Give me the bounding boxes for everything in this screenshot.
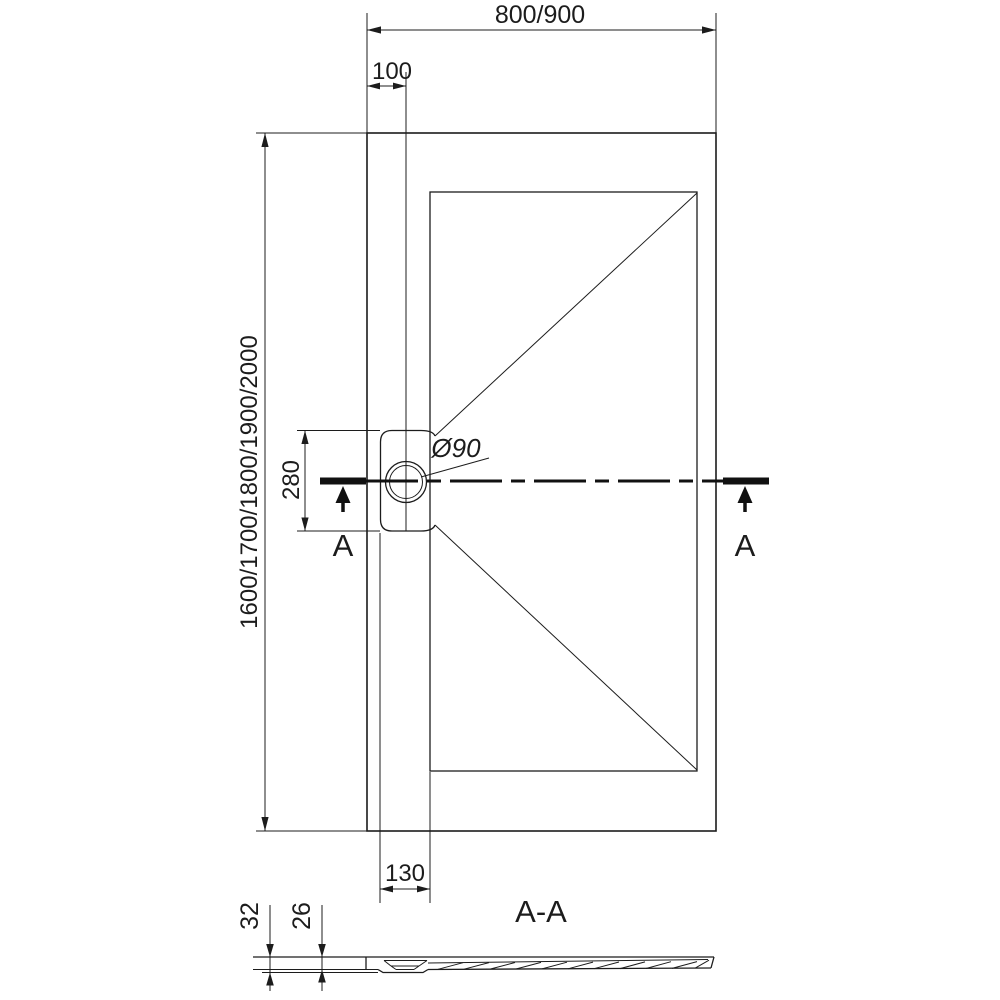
dimension-width: 800/900 (367, 1, 716, 133)
slope-diagonal-bottom (435, 525, 697, 770)
dimension-drain-diameter: Ø90 (421, 433, 489, 477)
technical-drawing-page: 800/900 100 1600/1700/1800/1900/2000 280… (0, 0, 1000, 1000)
section-slope-line (428, 960, 708, 964)
shower-tray-technical-drawing: 800/900 100 1600/1700/1800/1900/2000 280… (0, 0, 1000, 1000)
dim-offset-label: 100 (372, 58, 412, 85)
arrowhead-top (261, 133, 268, 147)
cut-marker-left-label: A (333, 528, 354, 563)
arrowhead-left (367, 26, 381, 33)
dim-total-height-label: 32 (236, 902, 264, 930)
slope-diagonal-top (435, 193, 697, 436)
arrowhead-bottom (301, 518, 308, 532)
drain-cover-slant-right (419, 961, 427, 967)
dim-length-label: 1600/1700/1800/1900/2000 (236, 335, 263, 629)
view-arrow-left-head (336, 486, 351, 503)
arrowhead-top (266, 944, 274, 957)
drain-flange-slant-left (391, 966, 396, 970)
arrowhead-bottom (261, 817, 268, 831)
dimension-drain-offset: 100 (367, 58, 412, 531)
drain-flange-slant-right (414, 966, 419, 970)
arrowhead-bottom (266, 973, 274, 986)
section-cut-line: A A (320, 481, 769, 563)
dimension-base-height: 26 (288, 902, 326, 991)
drain-cover-slant-left (384, 961, 391, 967)
arrowhead-right (702, 26, 716, 33)
dim-diameter-label: Ø90 (430, 433, 481, 463)
dim-width-label: 800/900 (495, 1, 585, 29)
dim-base-height-label: 26 (288, 902, 316, 930)
section-view: A-A 32 (236, 894, 714, 991)
section-title: A-A (515, 894, 567, 929)
section-right-end (711, 957, 714, 968)
arrowhead-top (301, 431, 308, 445)
cut-marker-right-label: A (735, 528, 756, 563)
dim-drain-length-label: 280 (278, 460, 305, 500)
dimension-drain-cutout-width: 130 (380, 533, 430, 903)
view-arrow-right-head (738, 486, 753, 503)
arrowhead-bottom (318, 970, 326, 983)
arrowhead-top (318, 944, 326, 957)
dim-drain-width-label: 130 (385, 860, 425, 887)
dimension-total-height: 32 (236, 902, 274, 991)
drain-cover-section (384, 961, 427, 970)
